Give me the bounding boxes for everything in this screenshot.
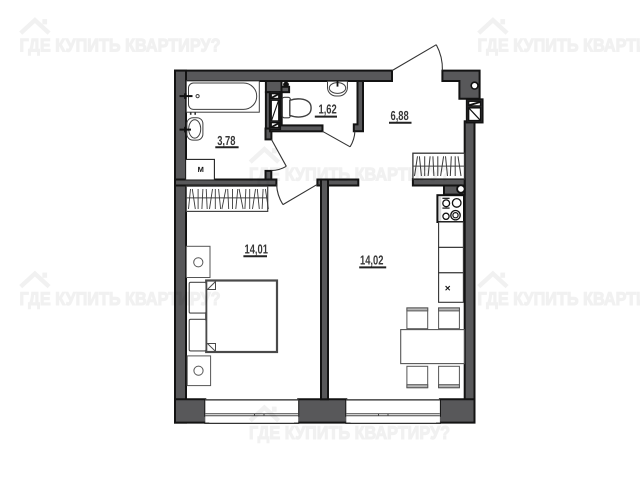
svg-text:14,01: 14,01	[245, 242, 268, 257]
svg-text:М: М	[198, 165, 204, 174]
svg-text:ГДЕ КУПИТЬ КВАРТИРУ?: ГДЕ КУПИТЬ КВАРТИРУ?	[478, 35, 640, 56]
svg-text:ГДЕ КУПИТЬ КВАРТИРУ?: ГДЕ КУПИТЬ КВАРТИРУ?	[20, 35, 221, 56]
svg-text:1,62: 1,62	[319, 102, 337, 117]
svg-text:ГДЕ КУПИТЬ КВАРТИРУ?: ГДЕ КУПИТЬ КВАРТИРУ?	[249, 422, 450, 443]
svg-text:×: ×	[445, 284, 451, 295]
svg-text:ГДЕ КУПИТЬ КВАРТИРУ?: ГДЕ КУПИТЬ КВАРТИРУ?	[249, 164, 450, 185]
svg-text:14,02: 14,02	[360, 253, 383, 268]
svg-text:6,88: 6,88	[391, 108, 409, 123]
svg-text:ГДЕ КУПИТЬ КВАРТИРУ?: ГДЕ КУПИТЬ КВАРТИРУ?	[478, 288, 640, 309]
svg-text:3,78: 3,78	[217, 133, 235, 148]
svg-text:ГДЕ КУПИТЬ КВАРТИРУ?: ГДЕ КУПИТЬ КВАРТИРУ?	[20, 288, 221, 309]
